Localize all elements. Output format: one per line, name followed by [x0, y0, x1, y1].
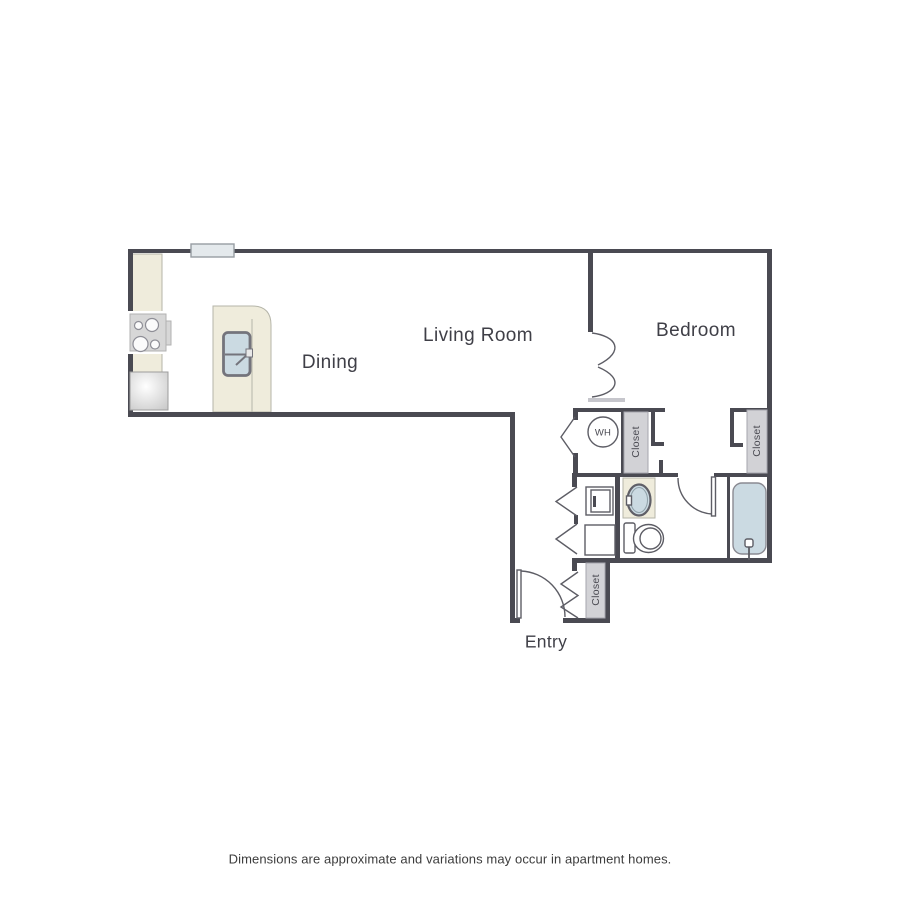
- toilet-bowl-inner: [640, 528, 661, 549]
- entry-door-leaf: [517, 570, 521, 618]
- bedroom-label: Bedroom: [656, 320, 736, 342]
- dryer-handle: [593, 496, 596, 507]
- floorplan-drawing: [0, 0, 900, 900]
- bedroom-closet-label: Closet: [751, 425, 763, 457]
- bifold-door-washer: [556, 524, 577, 554]
- wall-jamb-closet-left: [572, 558, 577, 571]
- bifold-door-water-heater: [561, 417, 575, 457]
- bifold-door-dryer: [556, 487, 577, 516]
- dining-label: Dining: [302, 352, 358, 374]
- kitchen-window: [191, 244, 234, 257]
- stove-burner-icon: [146, 319, 159, 332]
- wall-entry-closet-east: [605, 561, 610, 623]
- wall-bath-top-right: [714, 473, 772, 477]
- wall-hall-closet-jut: [651, 442, 664, 446]
- bathtub-drain-icon: [745, 539, 753, 547]
- hall-closet-label: Closet: [630, 426, 642, 458]
- stove-control-panel: [166, 321, 171, 345]
- entry-door-arc: [521, 571, 565, 617]
- disclaimer-text: Dimensions are approximate and variation…: [229, 852, 672, 867]
- washer: [585, 525, 615, 555]
- bathroom-door-leaf: [712, 477, 716, 516]
- wall-kitchen-bottom: [128, 412, 515, 417]
- wall-bedroom-west: [588, 249, 593, 332]
- living-room-label: Living Room: [423, 325, 533, 347]
- bedroom-door-threshold: [588, 398, 625, 402]
- refrigerator: [130, 372, 168, 410]
- wall-bedroom-closet-jut: [730, 443, 743, 447]
- stove-burner-icon: [135, 322, 143, 330]
- wall-entry-west: [510, 412, 515, 623]
- wall-hall-closet-stub: [659, 460, 663, 474]
- bathroom-door-arc: [678, 478, 712, 514]
- wall-stub-hall-3: [574, 515, 578, 524]
- wall-entry-bottom-left: [510, 618, 520, 623]
- wall-bath-laundry-divider: [615, 477, 620, 558]
- wall-entry-bottom-right: [563, 618, 610, 623]
- island-sink-faucet-base: [246, 349, 253, 357]
- wall-hall-closet-east: [651, 412, 655, 444]
- bedroom-door-arc-top: [592, 333, 615, 365]
- bifold-door-entry-closet: [561, 572, 578, 618]
- vanity-faucet-icon: [627, 496, 632, 505]
- wall-bedroom-closet-west: [730, 408, 734, 446]
- wall-jamb-bath-left: [572, 473, 577, 487]
- stove-burner-icon: [151, 340, 160, 349]
- entry-closet-label: Closet: [590, 574, 602, 606]
- wall-right: [767, 249, 772, 563]
- water-heater-label: WH: [595, 427, 611, 438]
- entry-label: Entry: [525, 632, 567, 653]
- floorplan-page: Living Room Dining Bedroom Entry WH Clos…: [0, 0, 900, 900]
- bedroom-door-arc-bottom: [592, 367, 615, 397]
- stove-burner-icon: [133, 337, 148, 352]
- wall-bath-bottom: [572, 558, 772, 563]
- wall-hall-top: [573, 408, 665, 412]
- wall-tub-divider: [727, 477, 730, 558]
